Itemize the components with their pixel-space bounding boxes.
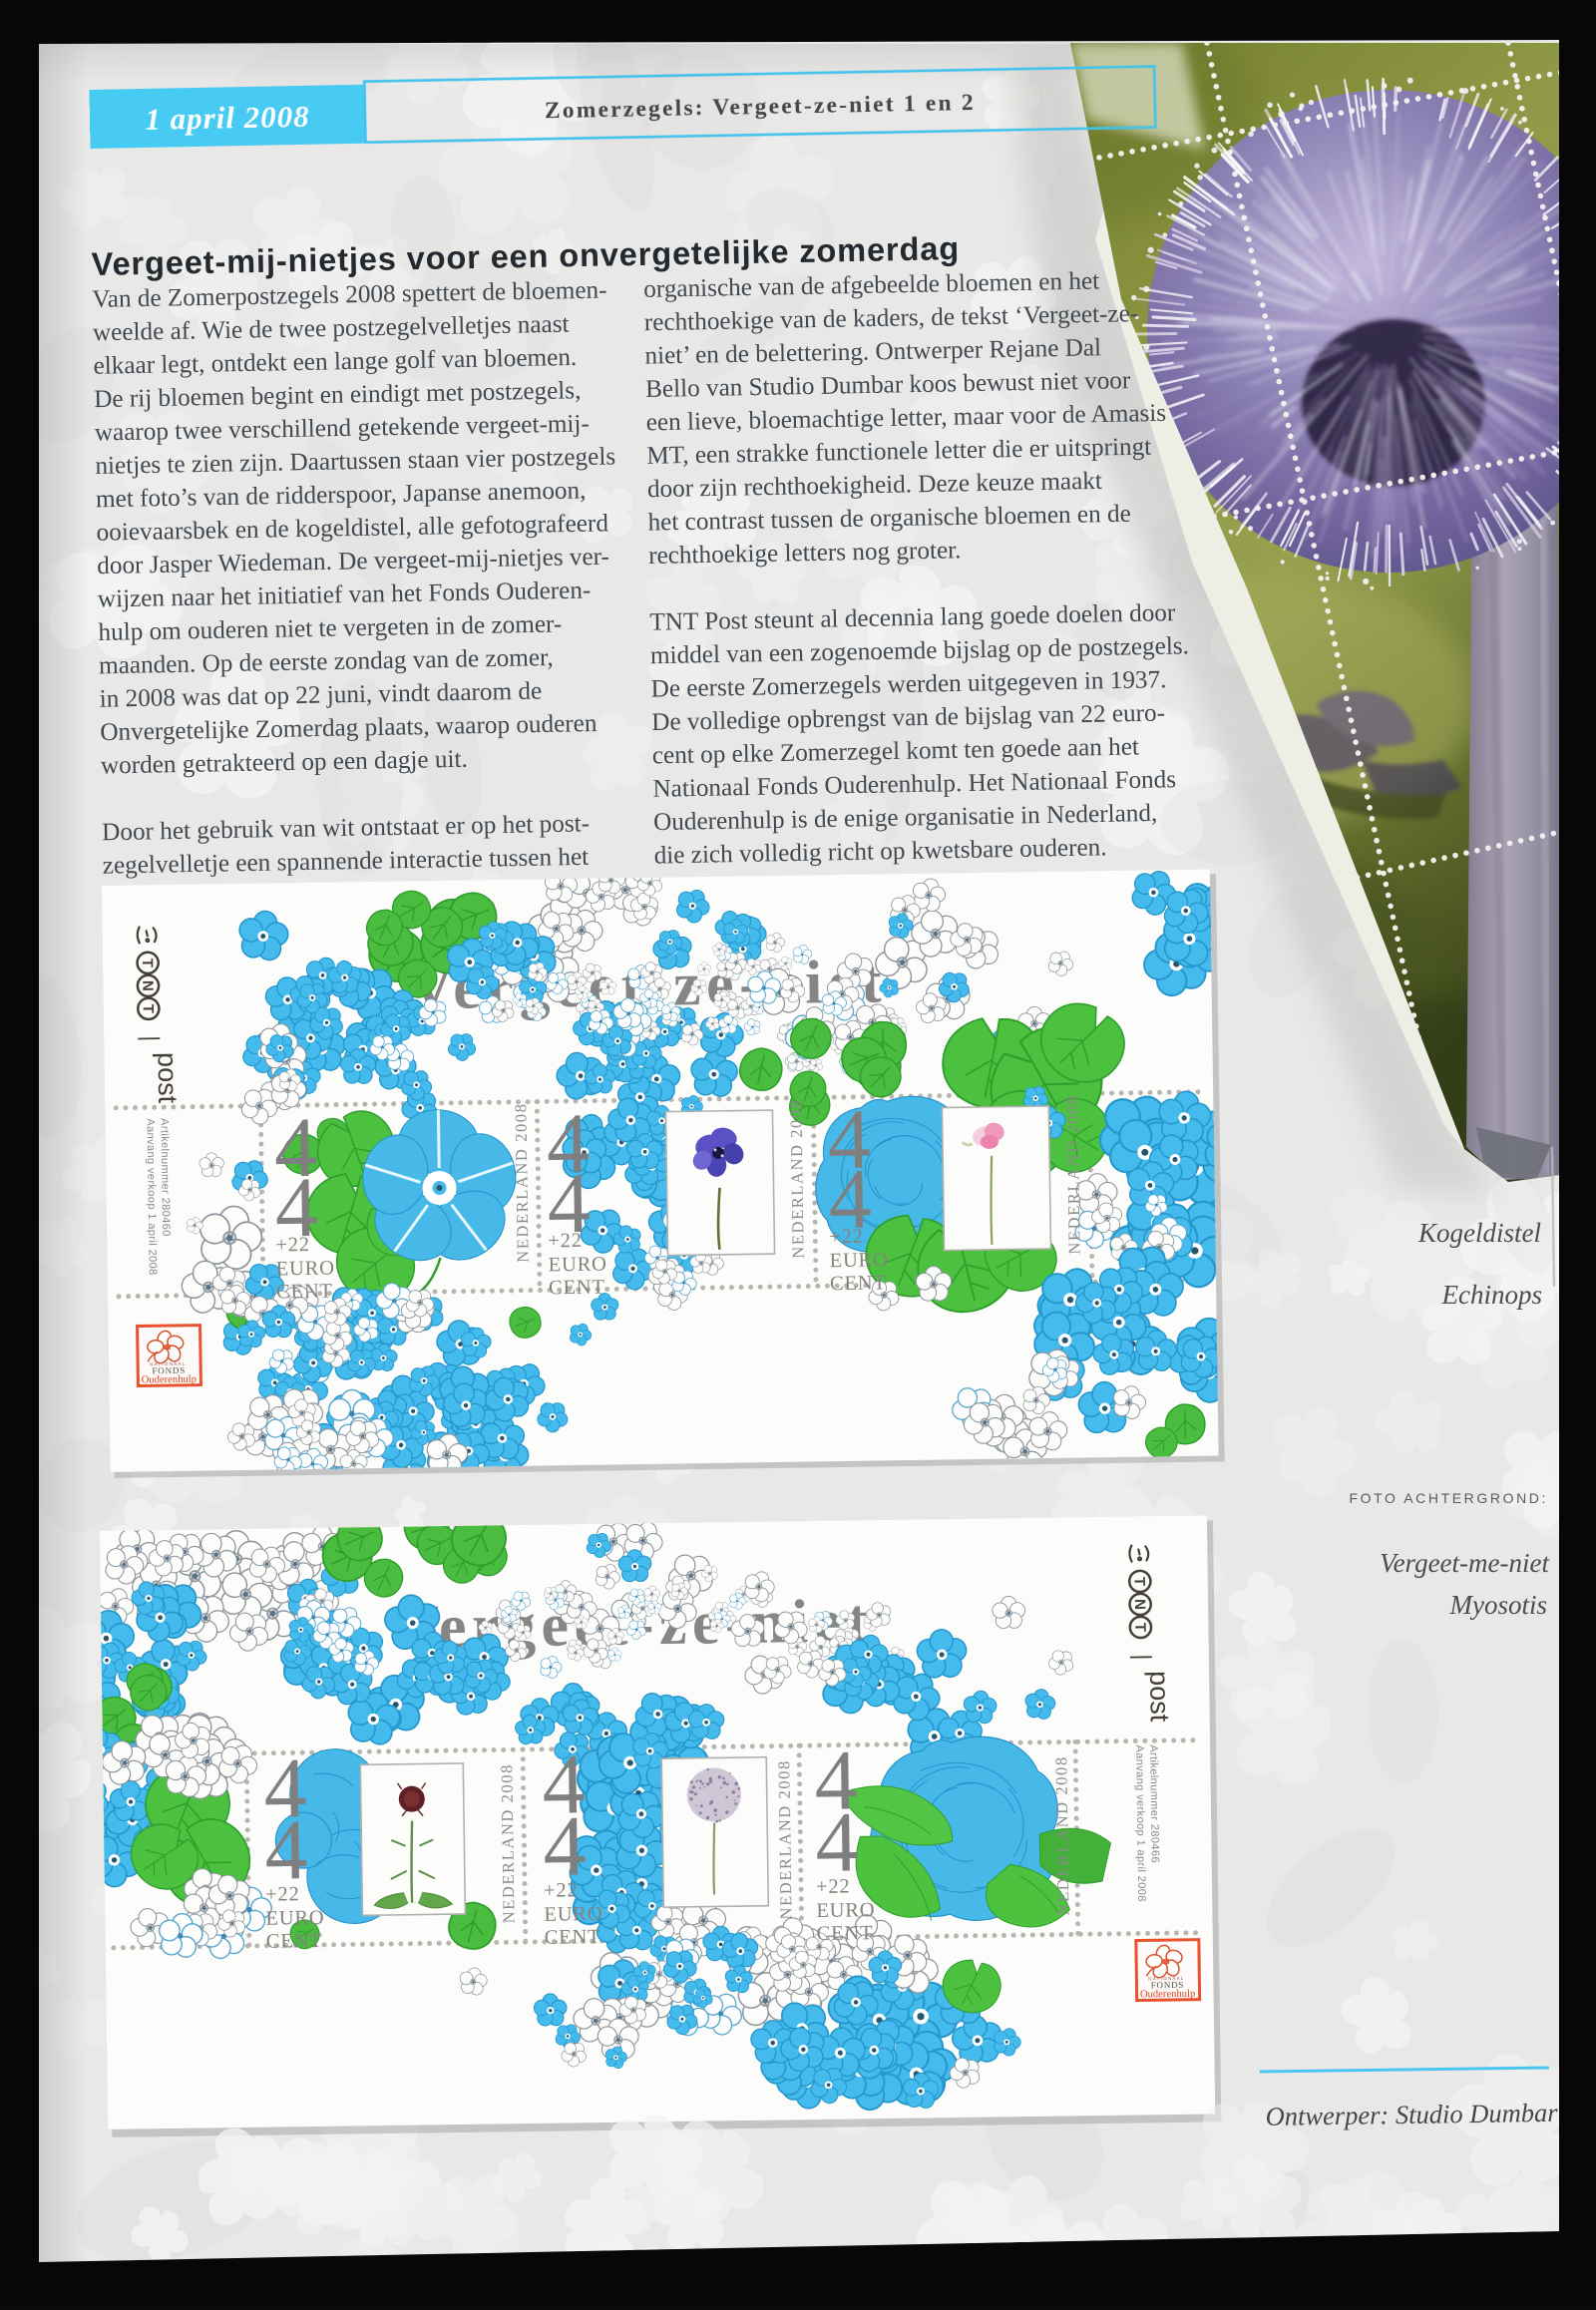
svg-text:N: N [1131,1599,1148,1610]
svg-text:CENT: CENT [266,1930,323,1953]
svg-text:EURO: EURO [829,1249,888,1272]
svg-text:1 april 2008: 1 april 2008 [145,99,310,137]
svg-text:NEDERLAND 2008: NEDERLAND 2008 [511,1102,532,1263]
svg-text:+22: +22 [829,1226,864,1249]
svg-text:Ontwerper: Studio Dumbar: Ontwerper: Studio Dumbar [1265,2098,1558,2131]
svg-text:Artikelnummer 280460: Artikelnummer 280460 [158,1118,172,1237]
svg-text:CENT: CENT [276,1281,333,1304]
svg-text:EURO: EURO [265,1907,324,1930]
svg-text:Echinops: Echinops [1441,1280,1543,1310]
svg-text:EURO: EURO [276,1258,335,1281]
svg-text:T: T [1131,1623,1148,1632]
svg-text:NEDERLAND 2008: NEDERLAND 2008 [786,1098,807,1259]
svg-text:+22: +22 [275,1234,310,1257]
svg-text:post: post [152,1052,183,1104]
svg-text:T: T [140,1004,157,1013]
svg-text:Artikelnummer 280466: Artikelnummer 280466 [1147,1744,1161,1863]
svg-text:EURO: EURO [544,1903,602,1926]
svg-text:CENT: CENT [817,1922,874,1945]
svg-text:NEDERLAND 2008: NEDERLAND 2008 [774,1759,795,1920]
svg-text:Aanvang verkoop 1 april 2008: Aanvang verkoop 1 april 2008 [1133,1744,1147,1902]
svg-text:EURO: EURO [816,1899,875,1922]
svg-text:CENT: CENT [545,1926,601,1949]
svg-text:post: post [1144,1671,1175,1723]
svg-text:+22: +22 [816,1876,851,1898]
svg-text:Aanvang verkoop 1 april 2008: Aanvang verkoop 1 april 2008 [144,1118,158,1276]
svg-text:CENT: CENT [830,1272,887,1295]
svg-text:N: N [139,980,156,991]
svg-text:NEDERLAND 2008: NEDERLAND 2008 [1062,1094,1083,1255]
svg-text:NEDERLAND 2008: NEDERLAND 2008 [497,1763,518,1924]
svg-text:EURO: EURO [549,1254,607,1277]
svg-text:Myosotis: Myosotis [1449,1590,1548,1620]
svg-text:T: T [139,959,156,967]
svg-text:+22: +22 [544,1879,579,1901]
svg-text:Vergeet-me-niet: Vergeet-me-niet [1380,1548,1550,1578]
svg-text:+22: +22 [265,1883,300,1905]
svg-text:Ouderenhulp: Ouderenhulp [142,1374,197,1386]
svg-text:FOTO ACHTERGROND:: FOTO ACHTERGROND: [1349,1490,1548,1506]
svg-text:Ouderenhulp: Ouderenhulp [1140,1989,1195,2001]
svg-text:rechthoekige letters nog grote: rechthoekige letters nog groter. [648,537,962,570]
svg-text:+22: +22 [548,1230,583,1253]
svg-text:CENT: CENT [549,1277,605,1300]
svg-text:NEDERLAND 2008: NEDERLAND 2008 [1051,1755,1072,1916]
svg-text:T: T [1131,1577,1148,1586]
svg-text:Kogeldistel: Kogeldistel [1417,1218,1541,1248]
